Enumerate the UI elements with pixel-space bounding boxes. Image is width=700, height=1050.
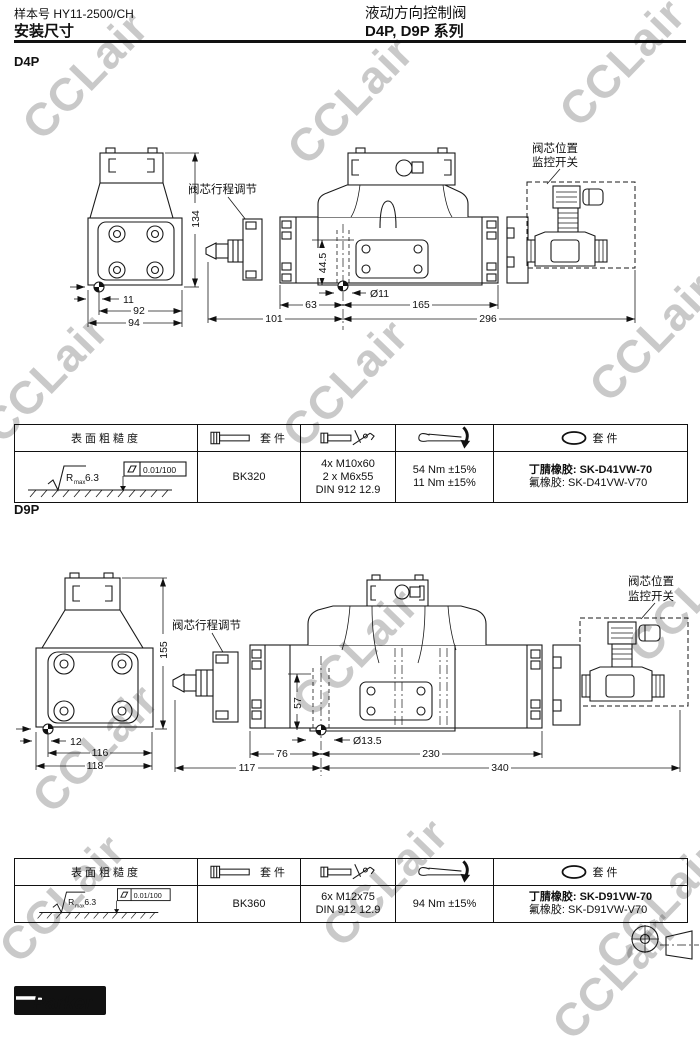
d9p-position-switch: 阀芯位置 监控开关 <box>553 574 688 725</box>
bolt-spec-line: 2 x M6x55 <box>323 471 374 484</box>
torque-line: 11 Nm ±15% <box>413 477 476 490</box>
d9p-roughness-cell: R max 6.3 0.01/100 <box>15 885 197 922</box>
d9p-switch-label-line2: 监控开关 <box>628 589 674 603</box>
roughness-value: 6.3 <box>84 897 96 907</box>
dim-d9p-w2: 118 <box>87 760 104 772</box>
torque-wrench-icon <box>416 860 474 884</box>
d4p-roughness-cell: R max 6.3 0.01/100 <box>15 451 197 502</box>
plug-detail-icon <box>631 925 699 959</box>
seal-fkm-label: 氟橡胶: <box>529 477 565 489</box>
roughness-header-label: 表面粗糙度 <box>71 864 141 880</box>
kit-header-label: 套件 <box>593 430 621 446</box>
d4p-switch-label-line1: 阀芯位置 <box>532 141 578 155</box>
dim-d4p-c: 165 <box>412 299 430 311</box>
seal-nbr-code: SK-D41VW-70 <box>580 464 653 476</box>
d4p-position-switch: 阀芯位置 监控开关 <box>507 141 635 283</box>
d4p-col-seal-header: 套件 <box>493 425 687 451</box>
dim-d4p-w1: 92 <box>133 305 145 317</box>
bolt-icon <box>210 864 254 880</box>
kit-header-label: 套件 <box>593 864 621 880</box>
parker-wordmark: Parker <box>33 993 94 1014</box>
d9p-switch-label-line1: 阀芯位置 <box>628 574 674 588</box>
dim-d9p-pad: 57 <box>292 697 304 709</box>
d9p-stroke-adjust-label: 阀芯行程调节 <box>172 618 241 632</box>
roughness-flatness: 0.01/100 <box>134 891 162 900</box>
dim-d9p-b: 117 <box>239 762 256 774</box>
dim-d9p-d: 340 <box>491 762 509 774</box>
d4p-left-view <box>88 148 182 292</box>
d9p-seal-cell: 丁腈橡胶: SK-D91VW-70 氟橡胶: SK-D91VW-V70 <box>493 885 687 922</box>
seal-fkm-label: 氟橡胶: <box>529 904 565 916</box>
d9p-side-view <box>250 575 542 776</box>
dim-d4p-d: 296 <box>479 313 497 325</box>
d9p-kit-cell: BK360 <box>197 885 300 922</box>
d4p-switch-label-line2: 监控开关 <box>532 155 578 169</box>
roughness-value: 6.3 <box>85 473 99 484</box>
dim-d9p-edge: 12 <box>70 736 82 748</box>
d9p-col-roughness-header: 表面粗糙度 <box>15 859 197 885</box>
oring-icon <box>561 431 587 445</box>
torque-line: 54 Nm ±15% <box>413 464 477 477</box>
d4p-bolts-cell: 4x M10x60 2 x M6x55 DIN 912 12.9 <box>300 451 395 502</box>
roughness-flatness: 0.01/100 <box>143 465 176 475</box>
d9p-col-bolts-header <box>300 859 395 885</box>
bolt-spec-line: 4x M10x60 <box>321 458 375 471</box>
dim-d4p-hole: Ø11 <box>370 288 389 300</box>
d9p-bolts-cell: 6x M12x75 DIN 912 12.9 <box>300 885 395 922</box>
catalog-page: { "header": { "catalog": "样本号 HY11-2500/… <box>0 0 700 1019</box>
seal-nbr-label: 丁腈橡胶: <box>529 464 577 476</box>
kit-header-label: 套件 <box>260 430 288 446</box>
d4p-col-bolts-header <box>300 425 395 451</box>
seal-nbr-label: 丁腈橡胶: <box>529 891 577 903</box>
dim-d4p-a: 63 <box>305 299 317 311</box>
seal-nbr-code: SK-D91VW-70 <box>580 891 653 903</box>
d4p-col-torque-header <box>395 425 493 451</box>
dim-d4p-height: 134 <box>190 210 202 228</box>
bolt-spec-line: 6x M12x75 <box>321 891 375 904</box>
dim-d4p-w2: 94 <box>128 317 140 329</box>
d4p-spec-table: 表面粗糙度 套件 套件 <box>14 424 688 503</box>
dim-d9p-height: 155 <box>158 641 170 659</box>
bolt-spec-line: DIN 912 12.9 <box>316 904 381 917</box>
dim-d9p-c: 230 <box>422 748 440 760</box>
roughness-sub: max <box>74 480 85 486</box>
bolt-spec-line: DIN 912 12.9 <box>316 484 381 497</box>
d9p-left-view <box>36 573 153 734</box>
surface-roughness-symbol: R max 6.3 0.01/100 <box>31 887 181 921</box>
d9p-col-seal-header: 套件 <box>493 859 687 885</box>
kit-header-label: 套件 <box>260 864 288 880</box>
d4p-kit-cell: BK320 <box>197 451 300 502</box>
roughness-r: R <box>68 897 74 907</box>
d9p-torque-cell: 94 Nm ±15% <box>395 885 493 922</box>
parker-logo: Parker <box>14 986 106 1015</box>
bolt-icon <box>210 430 254 446</box>
roughness-r: R <box>66 473 73 484</box>
d4p-torque-cell: 54 Nm ±15% 11 Nm ±15% <box>395 451 493 502</box>
d9p-col-torque-header <box>395 859 493 885</box>
d9p-stroke-adjuster: 阀芯行程调节 <box>172 618 241 722</box>
seal-fkm-code: SK-D91VW-V70 <box>568 904 647 916</box>
d9p-spec-table: 表面粗糙度 套件 套件 <box>14 858 688 923</box>
d4p-col-roughness-header: 表面粗糙度 <box>15 425 197 451</box>
seal-fkm-code: SK-D41VW-V70 <box>568 477 647 489</box>
dim-d4p-b: 101 <box>265 313 283 325</box>
dim-d9p-a: 76 <box>276 748 288 760</box>
d4p-seal-cell: 丁腈橡胶: SK-D41VW-70 氟橡胶: SK-D41VW-V70 <box>493 451 687 502</box>
surface-roughness-symbol: R max 6.3 0.01/100 <box>22 454 190 500</box>
bolt-caliper-icon <box>320 427 376 449</box>
dim-d4p-pad: 44.5 <box>317 253 329 274</box>
d9p-col-kit-header: 套件 <box>197 859 300 885</box>
bolt-caliper-icon <box>320 861 376 883</box>
d4p-stroke-adjust-label: 阀芯行程调节 <box>188 182 257 196</box>
torque-line: 94 Nm ±15% <box>413 898 477 911</box>
dim-d9p-hole: Ø13.5 <box>353 735 382 747</box>
roughness-header-label: 表面粗糙度 <box>71 430 141 446</box>
torque-wrench-icon <box>416 426 474 450</box>
oring-icon <box>561 865 587 879</box>
d4p-col-kit-header: 套件 <box>197 425 300 451</box>
dim-d9p-w1: 116 <box>92 747 109 759</box>
